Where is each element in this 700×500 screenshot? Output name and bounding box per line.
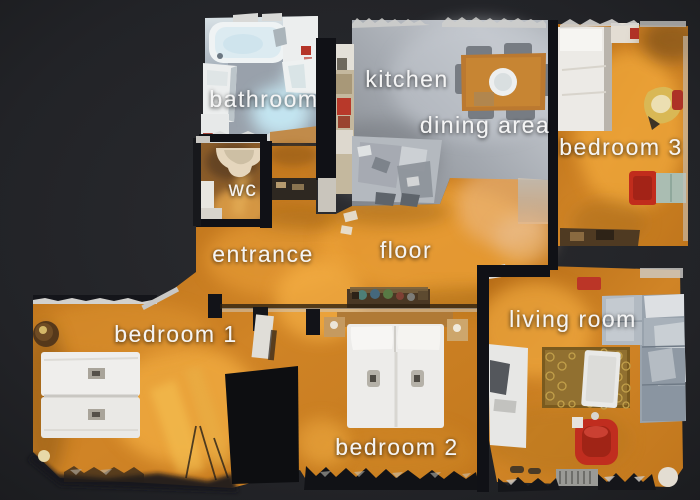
svg-text:kitchen: kitchen	[365, 66, 448, 92]
svg-text:bedroom 3: bedroom 3	[559, 134, 682, 160]
svg-text:bedroom 1: bedroom 1	[114, 321, 237, 347]
svg-text:floor: floor	[380, 237, 432, 263]
svg-text:dining area: dining area	[420, 112, 550, 138]
svg-text:entrance: entrance	[212, 241, 314, 267]
svg-text:living room: living room	[509, 306, 637, 332]
svg-text:wc: wc	[228, 178, 258, 201]
svg-text:bathroom: bathroom	[209, 86, 318, 112]
svg-text:bedroom 2: bedroom 2	[335, 434, 458, 460]
